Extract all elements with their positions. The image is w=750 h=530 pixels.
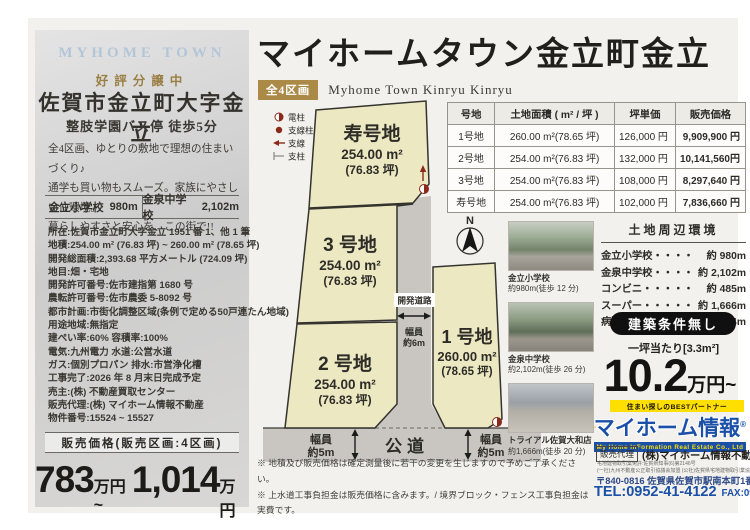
agent-name: (株)マイホーム情報不動産 佐賀本店 [642, 447, 750, 462]
cell-unit-price: 132,000 円 [614, 147, 675, 169]
per-tsubo-price-number: 10.2 [604, 350, 688, 402]
photo-junior-high-school [508, 302, 594, 352]
company-logo-text: マイホーム情報® [594, 412, 746, 442]
photo-supermarket [508, 383, 594, 433]
agent-row: 販売代理 (株)マイホーム情報不動産 佐賀本店 [596, 446, 750, 462]
surroundings-value: 約 980m [707, 249, 747, 266]
surroundings-value: 約 2,102m [698, 266, 746, 283]
col-header-price: 販売価格 [675, 103, 745, 125]
photo-item: 金泉中学校 約2,102m(徒歩 26 分) [508, 302, 596, 376]
license-line: 宅地建物取引業免許:佐賀県知事(6)第2146号 [597, 461, 747, 468]
plot-tsubo: (76.83 坪) [345, 163, 398, 177]
phone-number: TEL:0952-41-4122 [594, 484, 717, 500]
footnotes: ※ 地積及び販売価格は確定測量後に若干の変更を生じますので予めご了承ください。 … [257, 456, 592, 519]
spec-row: 電気:九州電力 水道:公営水道 [48, 346, 243, 359]
spec-row: 建ぺい率:60% 容積率:100% [48, 332, 243, 345]
plot-area: 254.00 m² [314, 377, 376, 392]
plot-name: 寿号地 [343, 122, 400, 145]
spec-row: 地目:畑・宅地 [48, 266, 243, 279]
photo-column: 金立小学校 約980m(徒歩 12 分) 金泉中学校 約2,102m(徒歩 26… [508, 221, 596, 464]
surroundings-value: 約 485m [707, 282, 747, 299]
plot-name: 1 号地 [441, 326, 492, 347]
surroundings-row: 金立小学校・・・・ 約 980m [601, 249, 746, 266]
spec-row: 工事完了:2026 年 8 月末日完成予定 [48, 372, 243, 385]
spec-row: 物件番号:15524 ~ 15527 [48, 412, 243, 425]
plot-kotobuki-label: 寿号地 254.00 m² (76.83 坪) [341, 122, 403, 177]
utility-pole-icon [493, 418, 502, 427]
school-distance-bar: 金立小学校 980m 金泉中学校 2,102m [45, 195, 239, 219]
utility-pole-icon [275, 113, 283, 121]
spec-row: 用途地域:無指定 [48, 319, 243, 332]
strut-icon [274, 152, 284, 160]
registered-mark: ® [740, 420, 746, 429]
school-distance: 980m [110, 201, 138, 213]
cell-price: 9,909,900 円 [675, 125, 745, 147]
plot-area: 254.00 m² [341, 147, 403, 162]
fax-number: FAX:0952-41-4118 [722, 488, 750, 499]
spec-row: ガス:個別プロパン 排水:市営浄化槽 [48, 359, 243, 372]
property-description: 全4区画、ゆとりの敷地で理想の住まいづくり♪ 通学も買い物もスムーズ。家族にやさ… [48, 140, 241, 238]
flyer-page: MYHOME TOWN 好評分譲中 佐賀市金立町大字金立 整肢学園バス停 徒歩5… [0, 0, 750, 530]
cell-price: 10,141,560円 [675, 147, 745, 169]
cell-price: 7,836,660 円 [675, 191, 745, 213]
surroundings-label: 金泉中学校・・・・ [601, 266, 694, 283]
footnote-line: ※ 上水道工事負担金は販売価格に含みます。/ 境界ブロック・フェンス工事負担金は… [257, 488, 592, 520]
footnote-line: ※ 地積及び販売価格は確定測量後に若干の変更を生じますので予めご了承ください。 [257, 456, 592, 488]
price-to: 1,014 [132, 459, 220, 501]
photo-elementary-school [508, 221, 594, 271]
plot-2 [285, 322, 397, 428]
legend-label: 支線 [288, 139, 306, 149]
width-text: 幅員 [310, 432, 332, 446]
spec-row: 都市計画:市街化調整区域(条例で定める50戸連たん地域) [48, 306, 243, 319]
agent-label: 販売代理 [596, 446, 638, 462]
description-line: 全4区画、ゆとりの敷地で理想の住まいづくり♪ [48, 140, 241, 179]
school-name: 金泉中学校 [143, 191, 196, 223]
page-title: マイホームタウン金立町金立 [257, 27, 742, 75]
plot-area: 260.00 m² [437, 349, 497, 364]
photo-caption-name: 金泉中学校 [508, 354, 550, 364]
access-text: 整肢学園バス停 徒歩5分 [35, 116, 249, 135]
public-road-name: 公道 [385, 436, 429, 456]
price-to-unit: 万円 [219, 473, 249, 521]
cell-unit-price: 126,000 円 [614, 125, 675, 147]
price-from-unit: 万円~ [94, 473, 132, 515]
photo-caption-distance: 約2,102m(徒歩 26 分) [508, 365, 596, 376]
stay-pole-icon [276, 127, 282, 133]
price-range: 783 万円~ 1,014 万円 [35, 459, 249, 521]
surroundings-title: 土地周辺環境 [601, 221, 746, 243]
per-tsubo-price: 10.2 万円~ [594, 350, 746, 402]
contact-row: TEL:0952-41-4122 FAX:0952-41-4118 [594, 484, 750, 500]
plot-3-label: 3 号地 254.00 m² (76.83 坪) [319, 233, 381, 288]
spec-row: 農転許可番号:佐市農委 5-8092 号 [48, 292, 243, 305]
house-mascot-icon [594, 415, 596, 439]
spec-row: 開発許可番号:佐市建指第 1680 号 [48, 279, 243, 292]
surroundings-row: コンビニ・・・・・ 約 485m [601, 282, 746, 299]
no-building-conditions-badge: 建築条件無し [610, 312, 736, 335]
cell-unit-price: 108,000 円 [614, 169, 675, 191]
spec-row: 地積:254.00 m² (76.83 坪) ~ 260.00 m² (78.6… [48, 239, 243, 252]
guy-wire-icon [273, 140, 285, 146]
legend-label: 支線柱 [288, 126, 314, 136]
dev-road-width-text: 幅員 [405, 326, 423, 337]
school-distance-junior-high: 金泉中学校 2,102m [142, 196, 240, 218]
photo-item: トライアル佐賀大和店 約1,666m(徒歩 20 分) [508, 383, 596, 457]
site-map: 寿号地 254.00 m² (76.83 坪) 3 号地 254.00 m² (… [255, 96, 547, 488]
surroundings-label: 金立小学校・・・・ [601, 249, 694, 266]
plot-area: 254.00 m² [319, 258, 381, 273]
company-tagline: 住まい探しのBESTパートナー [610, 400, 744, 412]
legend-label: 支柱 [288, 152, 306, 162]
brand-text: MYHOME TOWN [35, 45, 249, 62]
spec-row: 販売代理:(株) マイホーム情報不動産 [48, 399, 243, 412]
utility-pole-icon [420, 185, 429, 194]
compass-needle [462, 227, 478, 252]
dev-road-name: 開発道路 [397, 296, 432, 306]
company-logo-block: 住まい探しのBESTパートナー マイホーム情報® My Home InForma… [594, 400, 746, 452]
plot-tsubo: (76.83 坪) [318, 393, 371, 407]
school-name: 金立小学校 [49, 199, 104, 215]
compass: N [457, 215, 483, 254]
map-legend: 電柱 支線柱 支線 支柱 [273, 113, 314, 162]
plot-tsubo: (76.83 坪) [323, 274, 376, 288]
surroundings-row: 金泉中学校・・・・ 約 2,102m [601, 266, 746, 283]
photo-item: 金立小学校 約980m(徒歩 12 分) [508, 221, 596, 295]
plot-name: 3 号地 [323, 233, 377, 256]
spec-list: 所在:佐賀市金立町大字金立 1951 番 1、他 1 筆 地積:254.00 m… [48, 226, 243, 425]
plot-name: 2 号地 [318, 352, 372, 375]
compass-n-label: N [466, 215, 474, 227]
cell-unit-price: 102,000 円 [614, 191, 675, 213]
cell-price: 8,297,640 円 [675, 169, 745, 191]
left-info-panel: MYHOME TOWN 好評分譲中 佐賀市金立町大字金立 整肢学園バス停 徒歩5… [35, 30, 249, 507]
logo-row: マイホーム情報® [594, 412, 746, 442]
width-text: 幅員 [480, 432, 502, 446]
plot-2-label: 2 号地 254.00 m² (76.83 坪) [314, 352, 376, 407]
photo-caption-distance: 約980m(徒歩 12 分) [508, 284, 596, 295]
col-header-unit-price: 坪単価 [614, 103, 675, 125]
surroundings-label: コンビニ・・・・・ [601, 282, 694, 299]
logo-wordmark: マイホーム情報 [594, 417, 740, 440]
legend-label: 電柱 [288, 113, 306, 123]
spec-row: 所在:佐賀市金立町大字金立 1951 番 1、他 1 筆 [48, 226, 243, 239]
per-tsubo-price-unit: 万円~ [687, 370, 736, 397]
school-distance-elementary: 金立小学校 980m [45, 196, 142, 218]
price-from: 783 [35, 459, 94, 501]
spec-row: 開発総面積:2,393.68 平方メートル (724.09 坪) [48, 253, 243, 266]
photo-caption-name: 金立小学校 [508, 273, 550, 283]
plot-1-label: 1 号地 260.00 m² (78.65 坪) [437, 326, 497, 378]
price-band-label: 販売価格(販売区画:4区画) [45, 432, 239, 453]
photo-caption-name: トライアル佐賀大和店 [508, 435, 592, 445]
school-distance: 2,102m [202, 201, 239, 213]
dev-road-width-text: 約6m [403, 337, 425, 348]
spec-row: 売主:(株) 不動産買取センター [48, 386, 243, 399]
plot-tsubo: (78.65 坪) [441, 365, 492, 378]
